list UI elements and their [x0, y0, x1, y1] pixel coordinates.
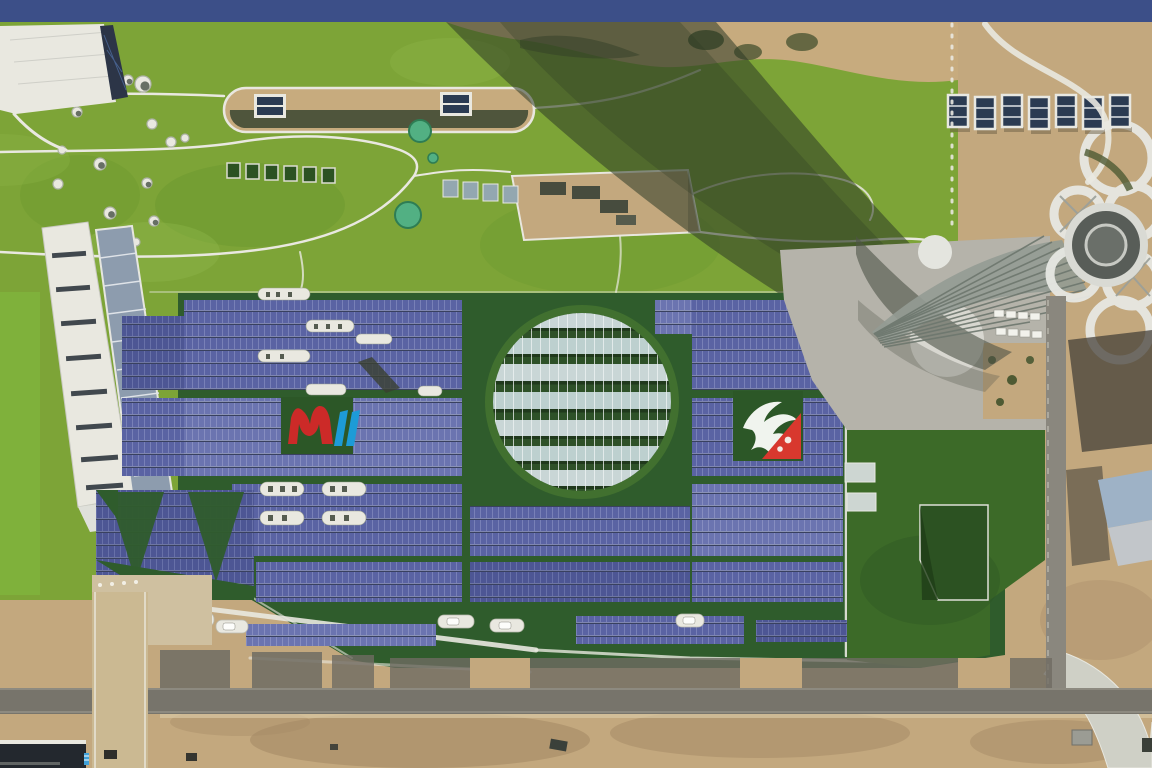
letterbox-top-bar — [0, 0, 1152, 22]
panel-block — [122, 398, 184, 476]
panel-block — [470, 562, 690, 602]
trench-skylight — [440, 92, 472, 116]
panel-block — [184, 300, 462, 390]
perimeter-road-south — [0, 688, 1152, 714]
panel-block — [256, 562, 462, 602]
shed — [1072, 730, 1092, 745]
panel-block — [655, 300, 692, 334]
crane-logo-right — [733, 391, 803, 461]
trench-skylight — [254, 94, 286, 118]
company-logo-left — [281, 397, 360, 454]
bottom-left-road — [0, 740, 89, 768]
panel-block — [122, 316, 184, 390]
tree-shadow — [1068, 330, 1152, 452]
striped-pole — [84, 753, 89, 765]
panel-block — [692, 562, 843, 602]
aerial-photo — [0, 0, 1152, 768]
panel-block — [692, 484, 843, 556]
dome-pad — [918, 235, 952, 269]
access-road-west — [92, 592, 148, 768]
panel-block — [576, 616, 744, 644]
panel-block — [246, 624, 436, 646]
lawn-skylight — [845, 463, 875, 482]
panel-block — [756, 620, 860, 642]
access-road-east — [1046, 296, 1066, 692]
aerial-photo-frame — [0, 0, 1152, 768]
lawn-skylight — [847, 493, 876, 511]
panel-block — [470, 506, 690, 556]
service-trench — [224, 88, 534, 132]
